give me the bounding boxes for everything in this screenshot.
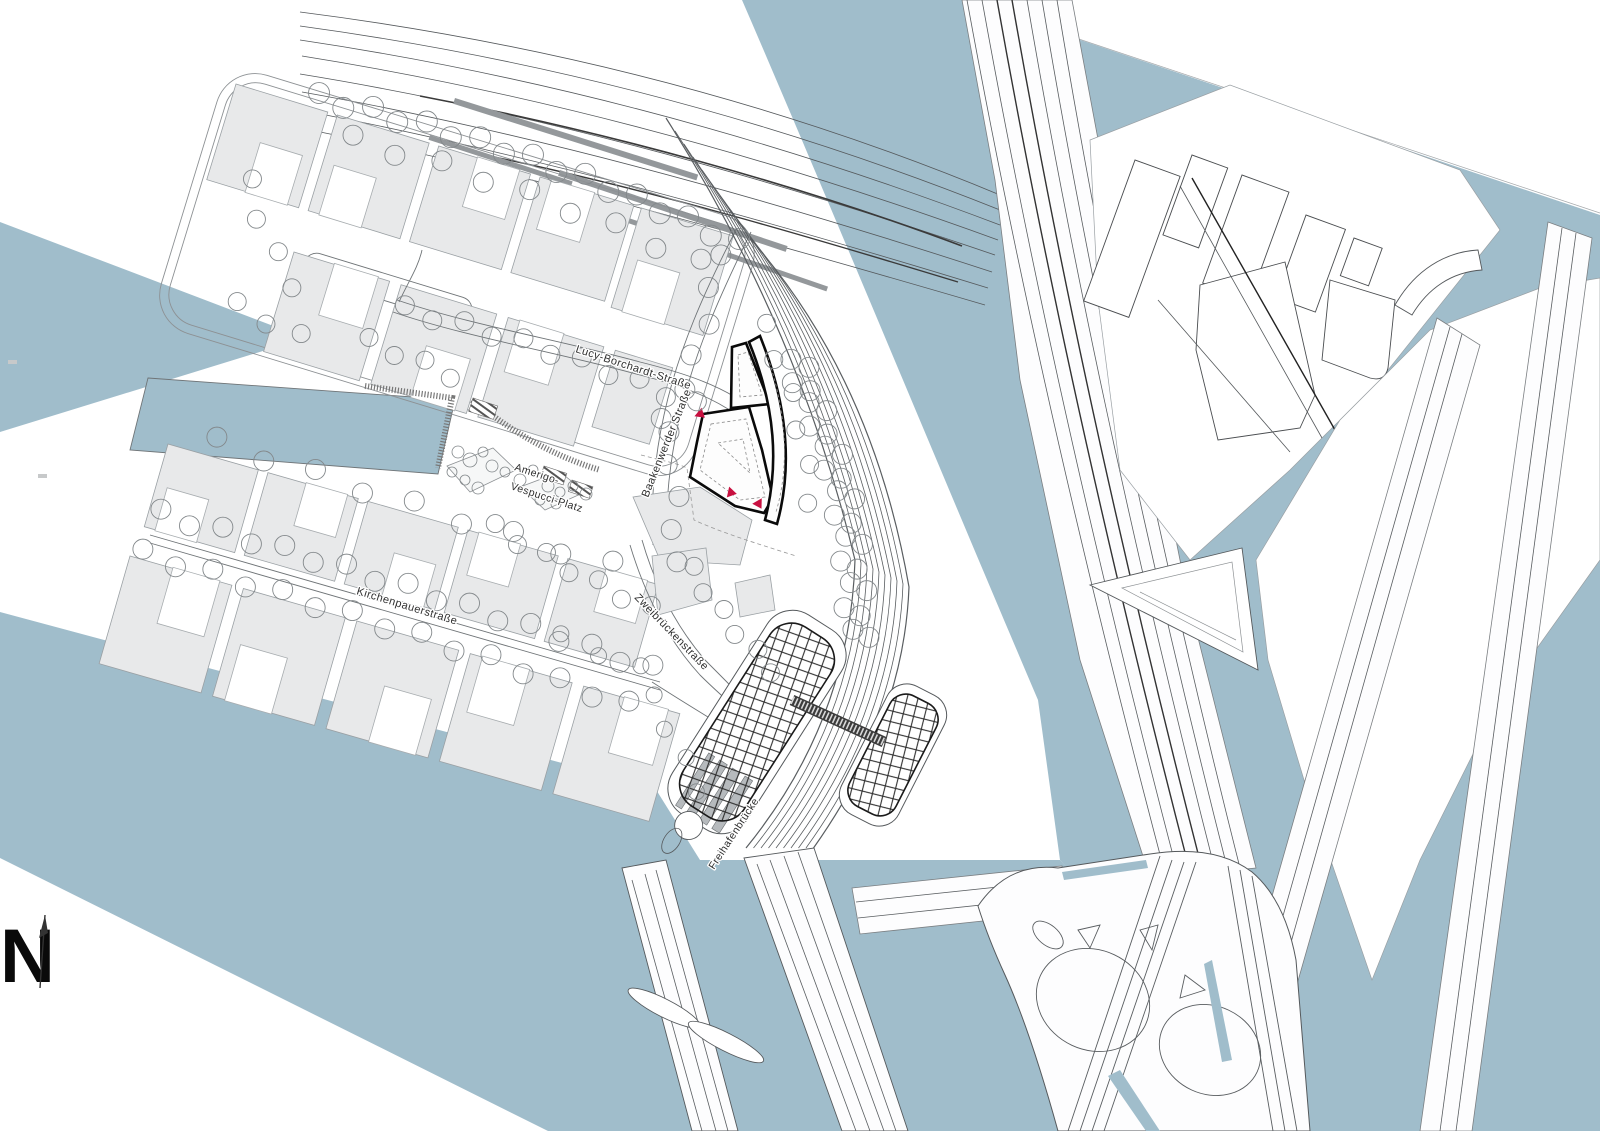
tree [787, 421, 805, 439]
tree [352, 483, 372, 503]
tree [273, 580, 293, 600]
tree [247, 210, 265, 228]
tree [681, 345, 701, 365]
tree [269, 243, 287, 261]
tree [486, 515, 504, 533]
tree [451, 514, 471, 534]
tree [342, 601, 362, 621]
site-plan-page: Lucy-Borchardt-Straße Baakenwerder Straß… [0, 0, 1600, 1131]
site-plan-map: Lucy-Borchardt-Straße Baakenwerder Straß… [0, 0, 1600, 1131]
tree [799, 494, 817, 512]
tree [404, 491, 424, 511]
tower-group-east [832, 676, 954, 833]
tree [603, 551, 623, 571]
tree [715, 600, 733, 618]
tree [470, 127, 491, 148]
tree [852, 534, 872, 554]
tree [847, 559, 867, 579]
tree [800, 416, 820, 436]
north-arrow: N [0, 914, 55, 999]
tree [845, 489, 865, 509]
tree [228, 293, 246, 311]
tree [646, 687, 662, 703]
tree [859, 627, 879, 647]
tree [503, 521, 523, 541]
tree [203, 559, 223, 579]
tree [758, 314, 776, 332]
tree [133, 539, 153, 559]
tree [726, 625, 744, 643]
plaza-tree [452, 446, 464, 458]
tree [831, 468, 851, 488]
tree [840, 573, 860, 593]
tree [832, 444, 852, 464]
